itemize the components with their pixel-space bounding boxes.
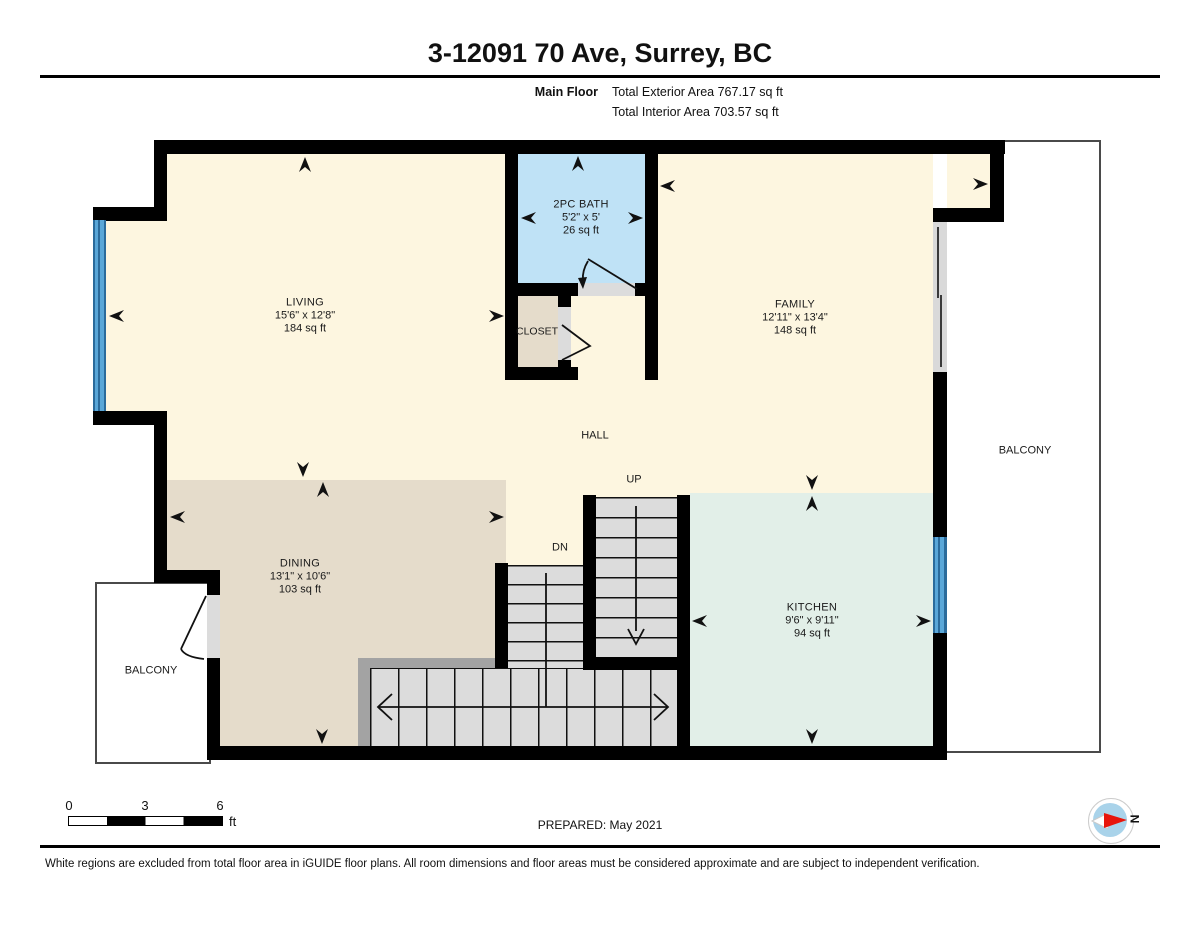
stairs-down-label: DN	[552, 542, 568, 555]
family-sliding-door	[933, 222, 947, 372]
dining-room-label: DINING 13'1" x 10'6" 103 sq ft	[270, 558, 330, 597]
hall-label: HALL	[581, 430, 609, 443]
wall-dining-left-upper	[207, 570, 220, 595]
stairs-up-label: UP	[626, 474, 641, 487]
balcony-right-area-lower	[947, 222, 1003, 751]
living-room-label: LIVING 15'6" x 12'8" 184 sq ft	[275, 297, 335, 336]
wall-bottom-exterior	[207, 746, 947, 760]
disclaimer-text: White regions are excluded from total fl…	[45, 858, 980, 870]
compass-face	[1093, 803, 1127, 837]
stair-railing-horizontal	[358, 658, 497, 668]
wall-stairs-up-right	[677, 495, 690, 751]
floor-plan-page: 3-12091 70 Ave, Surrey, BC Main Floor To…	[0, 0, 1200, 927]
scale-tick-0: 0	[65, 798, 72, 813]
closet-door-threshold	[558, 307, 571, 360]
balcony-door-threshold	[207, 595, 220, 658]
total-exterior-area: Total Exterior Area 767.17 sq ft	[612, 85, 783, 99]
compass-north-label: N	[1127, 815, 1141, 824]
stairs-down-treads	[508, 565, 583, 668]
wall-dining-left-lower	[207, 658, 220, 760]
page-title: 3-12091 70 Ave, Surrey, BC	[0, 38, 1200, 69]
wall-bay-top	[93, 207, 167, 221]
balcony-right-bottom-edge	[947, 751, 1003, 753]
kitchen-window	[933, 537, 947, 633]
living-bay-window	[93, 220, 106, 411]
wall-stairs-up-bottom	[583, 657, 690, 670]
bath-room-label: 2PC BATH 5'2" x 5' 26 sq ft	[553, 199, 608, 238]
bath-door-threshold	[578, 283, 635, 296]
floor-label: Main Floor	[450, 85, 598, 99]
wall-bath-family-divider	[645, 140, 658, 380]
wall-stairs-down-left	[495, 563, 508, 668]
stair-railing-vertical	[358, 658, 370, 746]
scale-tick-6: 6	[216, 798, 223, 813]
kitchen-room-label: KITCHEN 9'6" x 9'11" 94 sq ft	[785, 602, 838, 641]
footer-rule	[40, 845, 1160, 848]
bay-window-floor	[106, 220, 167, 411]
family-room-label: FAMILY 12'11" x 13'4" 148 sq ft	[762, 299, 828, 338]
wall-stairs-up-left	[583, 495, 596, 670]
scale-tick-3: 3	[141, 798, 148, 813]
wall-right-middle	[933, 372, 947, 537]
wall-left-middle	[154, 411, 167, 583]
header-rule	[40, 75, 1160, 78]
wall-notch-vertical	[990, 140, 1004, 222]
wall-bath-left	[505, 140, 518, 296]
prepared-date: PREPARED: May 2021	[0, 818, 1200, 832]
wall-right-lower	[933, 633, 947, 746]
wall-top-exterior	[154, 140, 1005, 154]
closet-label: CLOSET	[516, 326, 558, 339]
total-interior-area: Total Interior Area 703.57 sq ft	[612, 105, 779, 119]
wall-closet-stub-top	[558, 294, 571, 307]
wall-closet-stub-bottom	[558, 360, 571, 380]
stairs-lower-treads	[370, 668, 677, 747]
stairs-up-treads	[596, 497, 677, 657]
balcony-left-label: BALCONY	[125, 665, 178, 678]
balcony-right-label: BALCONY	[999, 445, 1052, 458]
